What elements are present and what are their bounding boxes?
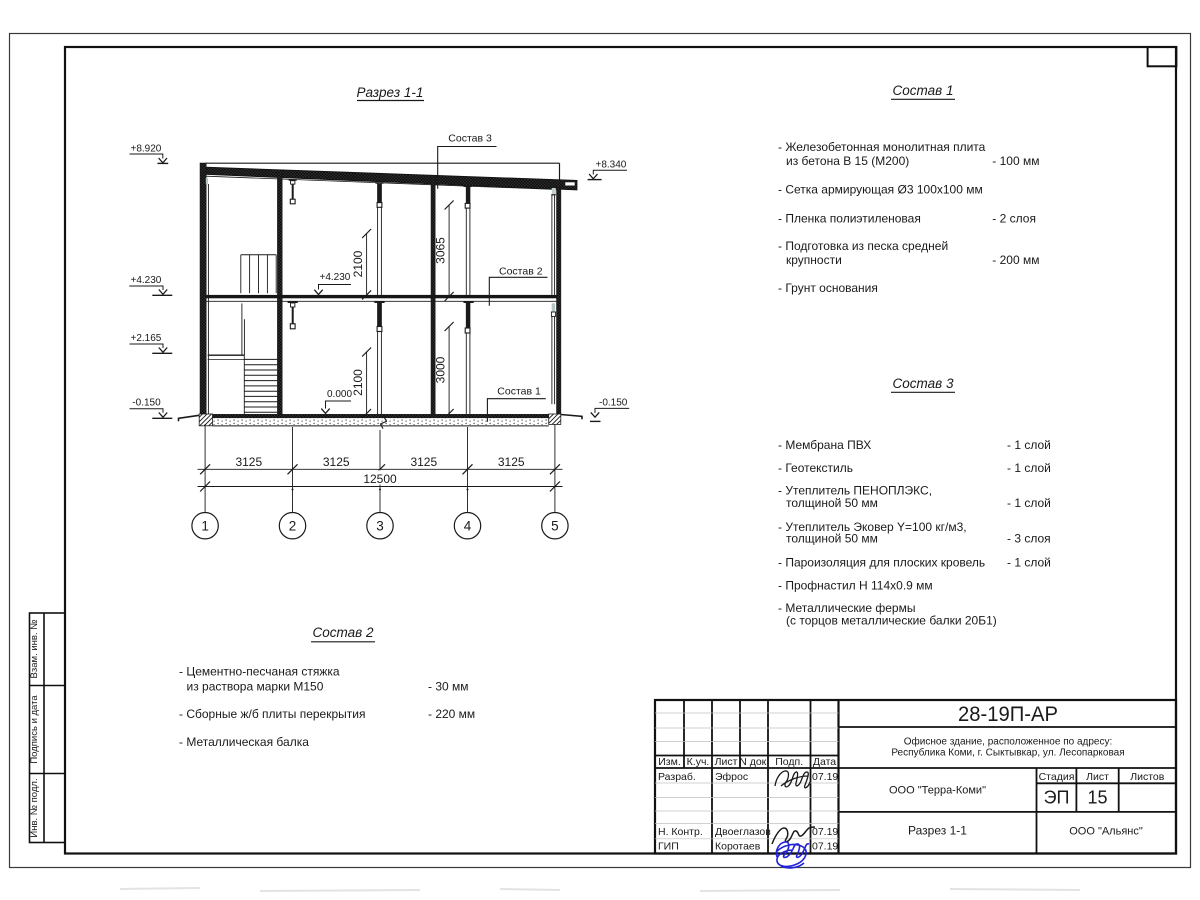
svg-text:Офисное здание, расположенное: Офисное здание, расположенное по адресу: xyxy=(904,735,1113,747)
svg-text:К.уч.: К.уч. xyxy=(687,756,710,768)
svg-text:- 1 слой: - 1 слой xyxy=(1007,556,1051,570)
svg-text:Коротаев: Коротаев xyxy=(715,841,761,853)
svg-text:-0.150: -0.150 xyxy=(599,398,628,409)
svg-text:- Профнастил Н 114х0.9 мм: - Профнастил Н 114х0.9 мм xyxy=(778,579,933,593)
svg-text:- Подготовка из песка средней: - Подготовка из песка средней xyxy=(778,239,948,253)
svg-text:- Грунт основания: - Грунт основания xyxy=(778,281,878,295)
svg-text:Разрез 1-1: Разрез 1-1 xyxy=(908,824,967,838)
svg-text:Состав 2: Состав 2 xyxy=(499,265,543,277)
svg-text:ГИП: ГИП xyxy=(658,841,679,853)
svg-text:12500: 12500 xyxy=(363,472,397,486)
svg-text:-0.150: -0.150 xyxy=(132,398,161,409)
svg-text:07.19: 07.19 xyxy=(812,771,838,783)
svg-text:N док.: N док. xyxy=(739,756,769,768)
svg-text:- 3 слоя: - 3 слоя xyxy=(1007,532,1051,546)
svg-text:3: 3 xyxy=(376,519,384,534)
svg-text:- Сетка армирующая Ø3 100х100: - Сетка армирующая Ø3 100х100 мм xyxy=(778,182,983,196)
svg-text:3125: 3125 xyxy=(323,455,350,469)
svg-text:Разрез 1-1: Разрез 1-1 xyxy=(357,85,424,100)
svg-text:07.19: 07.19 xyxy=(812,841,838,853)
svg-text:Лист: Лист xyxy=(1086,771,1109,783)
svg-text:Эфрос: Эфрос xyxy=(715,771,748,783)
svg-text:ООО "Терра-Коми": ООО "Терра-Коми" xyxy=(889,785,986,797)
svg-text:5: 5 xyxy=(551,519,559,534)
svg-text:- Пленка полиэтиленовая: - Пленка полиэтиленовая xyxy=(778,212,921,226)
svg-text:Изм.: Изм. xyxy=(658,756,681,768)
svg-text:- 1 слой: - 1 слой xyxy=(1007,496,1051,510)
svg-text:3125: 3125 xyxy=(498,455,525,469)
svg-text:3125: 3125 xyxy=(235,455,262,469)
svg-text:07.19: 07.19 xyxy=(812,826,838,838)
svg-text:3065: 3065 xyxy=(434,237,448,264)
svg-text:Республика Коми, г. Сыктывкар,: Республика Коми, г. Сыктывкар, ул. Лесоп… xyxy=(891,747,1124,759)
svg-text:ЭП: ЭП xyxy=(1044,788,1070,808)
svg-text:Разраб.: Разраб. xyxy=(658,771,696,783)
svg-text:28-19П-АР: 28-19П-АР xyxy=(958,703,1058,726)
svg-text:Состав 3: Состав 3 xyxy=(448,133,492,145)
svg-text:Состав 1: Состав 1 xyxy=(893,83,954,98)
svg-text:Состав 1: Состав 1 xyxy=(497,385,541,397)
svg-text:Лист: Лист xyxy=(715,756,738,768)
svg-text:из раствора марки М150: из раствора марки М150 xyxy=(187,679,324,693)
svg-text:- 100 мм: - 100 мм xyxy=(992,154,1039,168)
svg-text:Листов: Листов xyxy=(1130,771,1165,783)
svg-text:15: 15 xyxy=(1087,788,1107,808)
svg-text:- 220 мм: - 220 мм xyxy=(428,707,475,721)
svg-text:- 200 мм: - 200 мм xyxy=(992,253,1039,267)
svg-text:(с торцов металлические балки: (с торцов металлические балки 20Б1) xyxy=(786,614,997,628)
svg-text:3000: 3000 xyxy=(434,356,448,383)
svg-text:- Цементно-песчаная стяжка: - Цементно-песчаная стяжка xyxy=(179,665,340,679)
svg-text:- Железобетонная монолитная п: - Железобетонная монолитная плита xyxy=(778,140,986,154)
svg-text:+4.230: +4.230 xyxy=(320,272,351,283)
svg-text:+8.340: +8.340 xyxy=(596,159,627,170)
svg-text:- Мембрана ПВХ: - Мембрана ПВХ xyxy=(778,438,871,452)
svg-text:2: 2 xyxy=(289,519,297,534)
svg-text:3125: 3125 xyxy=(410,455,437,469)
svg-text:Инв. № подл.: Инв. № подл. xyxy=(29,778,40,837)
svg-text:- 2 слоя: - 2 слоя xyxy=(992,212,1036,226)
svg-text:Н. Контр.: Н. Контр. xyxy=(658,826,703,838)
svg-text:Подп.: Подп. xyxy=(775,756,803,768)
svg-text:толщиной 50 мм: толщиной 50 мм xyxy=(786,532,878,546)
svg-text:- 1 слой: - 1 слой xyxy=(1007,461,1051,475)
svg-text:крупности: крупности xyxy=(786,253,842,267)
svg-text:2100: 2100 xyxy=(351,250,365,277)
svg-text:- Сборные ж/б плиты перекрытия: - Сборные ж/б плиты перекрытия xyxy=(179,707,365,721)
svg-text:из бетона В 15 (М200): из бетона В 15 (М200) xyxy=(786,154,909,168)
svg-text:Двоеглазов: Двоеглазов xyxy=(715,826,771,838)
svg-text:0.000: 0.000 xyxy=(327,389,352,400)
svg-text:+4.230: +4.230 xyxy=(131,275,162,286)
svg-text:- Металлическая балка: - Металлическая балка xyxy=(179,735,309,749)
svg-text:4: 4 xyxy=(464,519,472,534)
svg-text:толщиной 50 мм: толщиной 50 мм xyxy=(786,496,878,510)
svg-text:- Геотекстиль: - Геотекстиль xyxy=(778,461,853,475)
svg-text:Стадия: Стадия xyxy=(1039,771,1075,783)
svg-text:+8.920: +8.920 xyxy=(131,144,162,155)
svg-text:Состав 2: Состав 2 xyxy=(313,625,374,640)
svg-text:Подпись и дата: Подпись и дата xyxy=(29,695,40,764)
svg-text:2100: 2100 xyxy=(351,369,365,396)
svg-text:- 30 мм: - 30 мм xyxy=(428,679,469,693)
svg-text:ООО "Альянс": ООО "Альянс" xyxy=(1069,826,1143,838)
svg-text:Дата: Дата xyxy=(813,756,836,768)
svg-text:- 1 слой: - 1 слой xyxy=(1007,438,1051,452)
svg-text:Взам. инв. №: Взам. инв. № xyxy=(29,620,40,679)
svg-text:+2.165: +2.165 xyxy=(131,333,162,344)
svg-text:1: 1 xyxy=(201,519,209,534)
svg-text:- Пароизоляция для плоских кро: - Пароизоляция для плоских кровель xyxy=(778,556,985,570)
svg-text:Состав 3: Состав 3 xyxy=(893,376,954,391)
